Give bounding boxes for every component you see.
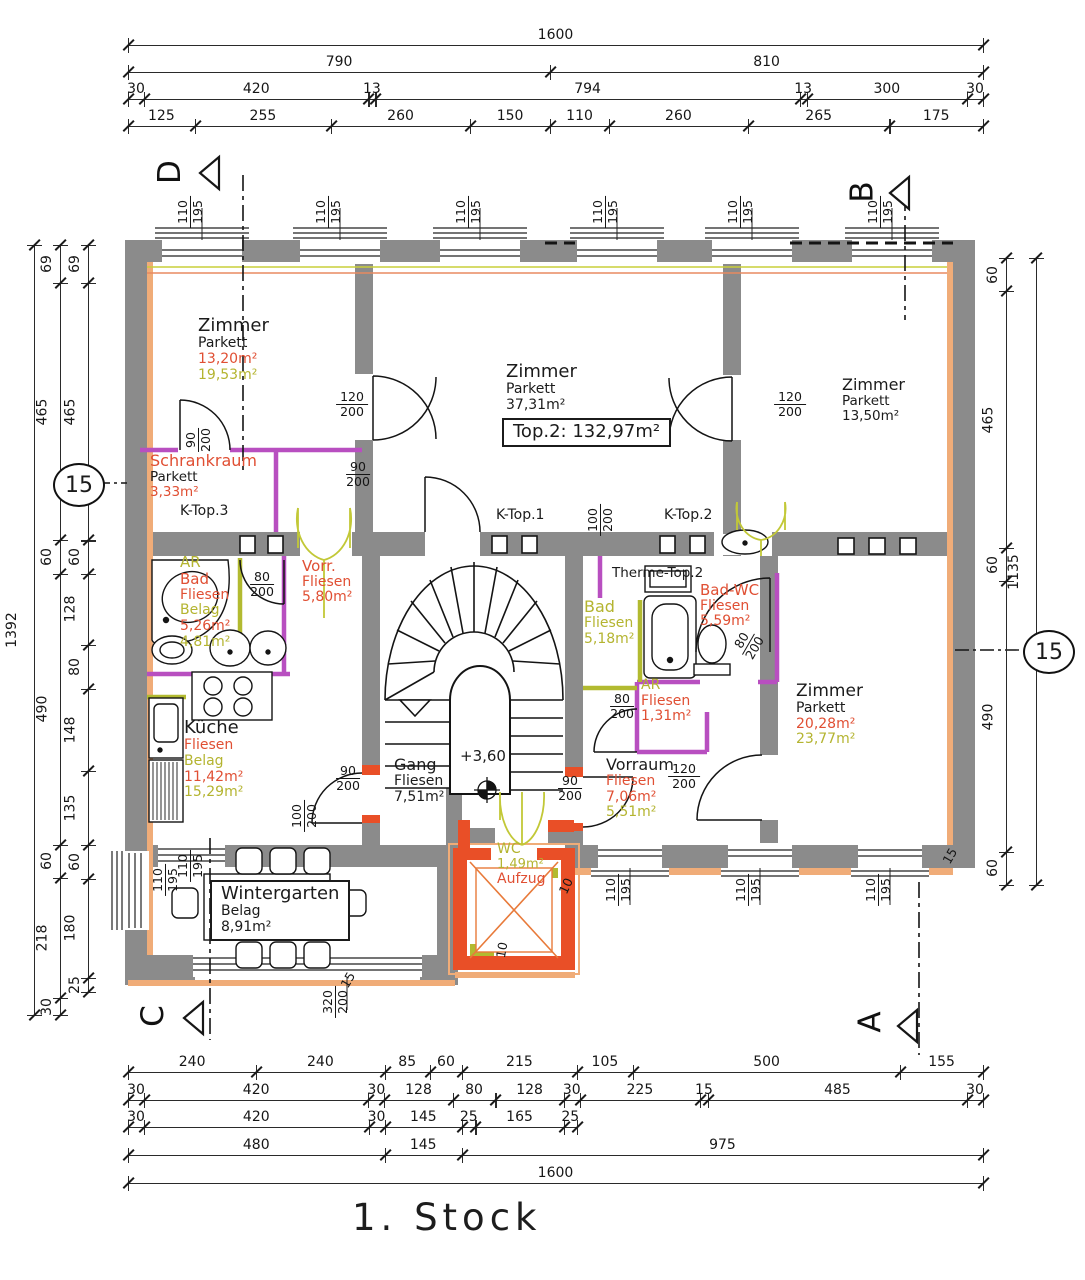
dim-width: 110 xyxy=(604,874,619,906)
dim-width: 100 xyxy=(290,800,305,832)
dim-value: 80 xyxy=(67,658,83,676)
dim-height: 200 xyxy=(668,777,700,791)
dim-value: 465 xyxy=(35,398,51,425)
dim-value: 300 xyxy=(873,81,900,97)
room-label-zimmer-tl: ZimmerParkett13,20m²19,53m² xyxy=(198,316,269,383)
room-label-line: 1,49m² xyxy=(497,858,546,873)
dim-value: 1600 xyxy=(538,27,574,43)
section-marker-arrow-B xyxy=(886,173,912,217)
dim-value: 1135 xyxy=(1006,554,1022,590)
dim-110-195-3: 110195 xyxy=(591,196,619,228)
dim-height: 195 xyxy=(619,874,633,906)
dim-chain-bottom-5 xyxy=(128,1183,983,1184)
dim-value: 60 xyxy=(39,548,55,566)
room-label-kueche: KücheFliesenBelag11,42m²15,29m² xyxy=(184,718,243,801)
room-label-zimmer-tr: ZimmerParkett13,50m² xyxy=(842,376,905,424)
room-label-line: Parkett xyxy=(796,701,863,717)
dim-110-195-4: 110195 xyxy=(726,196,754,228)
room-label-line: Zimmer xyxy=(842,376,905,394)
dim-value: 485 xyxy=(824,1082,851,1098)
dim-120-200-15: 120200 xyxy=(774,390,806,418)
room-label-line: Fliesen xyxy=(180,588,230,604)
room-label-vorr: Vorr.Fliesen5,80m² xyxy=(302,558,352,606)
dim-320-200-11: 320200 xyxy=(321,986,349,1018)
section-marker-A: A xyxy=(853,1011,889,1032)
dim-height: 200 xyxy=(336,405,368,419)
dim-value: 1600 xyxy=(538,1165,574,1181)
room-label-line: Fliesen xyxy=(641,694,691,710)
room-label-k-top-1: K-Top.1 xyxy=(496,508,544,524)
room-label-line: Fliesen xyxy=(184,738,243,754)
room-label-line: Belag xyxy=(180,603,230,619)
dim-100-200-23: 100200 xyxy=(290,800,318,832)
room-label-line: Therme-Top.2 xyxy=(612,566,703,581)
room-label-k-top-2: K-Top.2 xyxy=(664,508,712,524)
dim-chain-bottom-2 xyxy=(128,1100,983,1101)
room-label-line: Zimmer xyxy=(198,316,269,336)
dim-value: 105 xyxy=(592,1054,619,1070)
floor-plan-sheet: ZimmerParkett13,20m²19,53m²SchrankraumPa… xyxy=(0,0,1085,1280)
section-marker-arrow-D xyxy=(196,153,222,197)
dim-width: 120 xyxy=(774,390,806,405)
room-label-line: 13,20m² xyxy=(198,352,269,368)
dim-100-200-16: 100200 xyxy=(586,504,614,536)
dim-110-195-10: 110195 xyxy=(864,874,892,906)
room-label-line: 11,42m² xyxy=(184,770,243,786)
dim-value: 30 xyxy=(127,1082,145,1098)
dim-value: 30 xyxy=(39,998,55,1016)
dim-width: 320 xyxy=(321,986,336,1018)
room-label-line: K-Top.3 xyxy=(180,504,228,520)
section-marker-arrow-C xyxy=(180,998,206,1042)
dim-chain-bottom-3 xyxy=(128,1127,577,1128)
room-label-line: 20,28m² xyxy=(796,717,863,733)
room-label-bad-wc: Bad-WCFliesen5,59m² xyxy=(700,582,759,630)
room-label-ar-klein: ARFliesen1,31m² xyxy=(641,678,691,725)
dim-width: 80 xyxy=(250,570,274,585)
drawing-title: 1. Stock xyxy=(352,1196,541,1239)
room-label-line: Zimmer xyxy=(506,362,577,382)
dim-value: 13 xyxy=(363,81,381,97)
dim-height: 200 xyxy=(601,504,615,536)
dim-value: 148 xyxy=(63,716,79,743)
dim-chain-bottom-4 xyxy=(128,1155,983,1156)
dim-value: 145 xyxy=(410,1109,437,1125)
dim-value: 180 xyxy=(63,915,79,942)
dim-110-195-0: 110195 xyxy=(176,196,204,228)
dim-height: 195 xyxy=(741,196,755,228)
dim-value: 30 xyxy=(367,1082,385,1098)
dim-value: 260 xyxy=(665,108,692,124)
dim-width: 90 xyxy=(346,460,370,475)
dim-height: 200 xyxy=(346,475,370,489)
dim-height: 200 xyxy=(305,800,319,832)
dim-120-200-12: 120200 xyxy=(336,390,368,418)
dim-value: 30 xyxy=(127,81,145,97)
annotation-overlay: ZimmerParkett13,20m²19,53m²SchrankraumPa… xyxy=(0,0,1085,1280)
dim-value: 420 xyxy=(243,1082,270,1098)
room-label-zimmer-br: ZimmerParkett20,28m²23,77m² xyxy=(796,682,863,748)
dim-value: 145 xyxy=(410,1137,437,1153)
dim-value: 1392 xyxy=(4,612,20,648)
room-label-vorraum: VorraumFliesen7,06m²5,51m² xyxy=(606,756,674,821)
dim-height: 195 xyxy=(879,874,893,906)
dim-value: 125 xyxy=(148,108,175,124)
room-label-line: Fliesen xyxy=(302,575,352,591)
dim-value: 215 xyxy=(506,1054,533,1070)
dim-value: 150 xyxy=(497,108,524,124)
dim-value: 13 xyxy=(794,81,812,97)
section-marker-C: C xyxy=(135,1005,171,1027)
dim-value: 490 xyxy=(35,696,51,723)
dim-chain-top-3 xyxy=(128,99,983,100)
dim-chain-top-2 xyxy=(128,72,983,73)
dim-value: 30 xyxy=(127,1109,145,1125)
dim-value: 15 xyxy=(695,1082,713,1098)
dim-90-200-14: 90200 xyxy=(184,428,212,452)
dim-value: 60 xyxy=(39,852,55,870)
room-label-level: +3,60 xyxy=(460,748,506,765)
room-label-wc-aufzug: WC1,49m²Aufzug xyxy=(497,842,546,888)
axis-circle-15: 15 xyxy=(53,463,105,507)
dim-value: 465 xyxy=(63,398,79,425)
room-label-line: Vorraum xyxy=(606,756,674,774)
dim-chain-left-1 xyxy=(34,245,35,1015)
room-label-line: 37,31m² xyxy=(506,398,577,414)
dim-value: 480 xyxy=(243,1137,270,1153)
room-label-line: Belag xyxy=(184,754,243,770)
room-label-line: 4,81m² xyxy=(180,635,230,651)
dim-value: 500 xyxy=(753,1054,780,1070)
room-label-line: Gang xyxy=(394,756,444,774)
dim-110-195-7: 110195 xyxy=(176,850,204,882)
dim-10-25: 10 xyxy=(494,941,510,959)
dim-width: 100 xyxy=(586,504,601,536)
dim-value: 60 xyxy=(985,266,1001,284)
room-label-schrankraum: SchrankraumParkett3,33m² xyxy=(150,452,257,500)
dim-chain-left-2 xyxy=(60,245,61,1015)
dim-value: 25 xyxy=(460,1109,478,1125)
dim-height: 200 xyxy=(250,585,274,599)
room-label-k-top-3: K-Top.3 xyxy=(180,504,228,520)
dim-10-24: 10 xyxy=(557,876,576,896)
dim-value: 790 xyxy=(326,54,353,70)
room-label-line: Parkett xyxy=(842,394,905,409)
room-label-line: Bad-WC xyxy=(700,582,759,599)
dim-90-200-22: 90200 xyxy=(336,764,360,792)
room-label-line: 7,51m² xyxy=(394,790,444,806)
room-label-wintergarten: WintergartenBelag8,91m² xyxy=(210,880,350,941)
room-label-line: Zimmer xyxy=(796,682,863,701)
room-label-ar-bad: ARBadFliesenBelag5,26m²4,81m² xyxy=(180,554,230,650)
dim-chain-top-1 xyxy=(128,45,983,46)
room-label-line: Belag xyxy=(221,904,339,920)
dim-value: 128 xyxy=(63,596,79,623)
room-label-line: Parkett xyxy=(150,470,257,485)
room-label-bad-mitte: BadFliesen5,18m² xyxy=(584,598,634,647)
room-label-line: Fliesen xyxy=(700,599,759,615)
room-label-zimmer-mitte: ZimmerParkett37,31m² xyxy=(506,362,577,414)
dim-height: 195 xyxy=(749,874,763,906)
dim-80-200-19: 80200 xyxy=(730,627,766,662)
section-marker-arrow-A xyxy=(894,1006,920,1050)
dim-value: 794 xyxy=(574,81,601,97)
room-label-line: Bad xyxy=(180,571,230,588)
dim-value: 30 xyxy=(966,1082,984,1098)
dim-value: 25 xyxy=(67,976,83,994)
dim-value: 490 xyxy=(981,703,997,730)
room-label-line: WC xyxy=(497,842,546,858)
dim-110-195-1: 110195 xyxy=(314,196,342,228)
room-label-line: AR xyxy=(641,678,691,694)
dim-value: 135 xyxy=(63,795,79,822)
dim-80-200-17: 80200 xyxy=(250,570,274,598)
dim-value: 60 xyxy=(67,548,83,566)
room-label-line: Top.2: 132,97m² xyxy=(513,422,660,442)
dim-height: 195 xyxy=(329,196,343,228)
room-label-line: Fliesen xyxy=(606,774,674,790)
dim-value: 110 xyxy=(566,108,593,124)
dim-chain-top-4 xyxy=(128,126,983,127)
dim-height: 200 xyxy=(774,405,806,419)
dim-value: 30 xyxy=(966,81,984,97)
dim-value: 60 xyxy=(67,853,83,871)
dim-value: 218 xyxy=(35,925,51,952)
room-label-line: 5,51m² xyxy=(606,805,674,821)
dim-height: 195 xyxy=(469,196,483,228)
dim-value: 80 xyxy=(465,1082,483,1098)
dim-value: 60 xyxy=(985,860,1001,878)
dim-value: 420 xyxy=(243,1109,270,1125)
dim-height: 200 xyxy=(336,779,360,793)
room-label-line: Wintergarten xyxy=(221,884,339,904)
dim-value: 465 xyxy=(981,406,997,433)
room-label-line: 5,80m² xyxy=(302,590,352,606)
room-label-gang: GangFliesen7,51m² xyxy=(394,756,444,805)
room-label-line: Schrankraum xyxy=(150,452,257,470)
room-label-line: 5,26m² xyxy=(180,619,230,635)
dim-value: 240 xyxy=(307,1054,334,1070)
dim-15-26: 15 xyxy=(940,846,960,867)
dim-width: 110 xyxy=(864,874,879,906)
dim-value: 420 xyxy=(243,81,270,97)
dim-value: 69 xyxy=(39,255,55,273)
dim-value: 810 xyxy=(753,54,780,70)
dim-width: 110 xyxy=(176,850,191,882)
room-label-line: K-Top.2 xyxy=(664,508,712,524)
dim-90-200-13: 90200 xyxy=(346,460,370,488)
dim-width: 110 xyxy=(176,196,191,228)
dim-value: 975 xyxy=(709,1137,736,1153)
room-label-line: 23,77m² xyxy=(796,732,863,748)
room-label-line: Bad xyxy=(584,598,634,616)
dim-width: 110 xyxy=(454,196,469,228)
room-label-line: AR xyxy=(180,554,230,571)
room-label-line: Vorr. xyxy=(302,558,352,575)
room-label-line: 1,31m² xyxy=(641,709,691,725)
dim-80-200-18: 80200 xyxy=(610,692,634,720)
dim-height: 195 xyxy=(191,196,205,228)
dim-90-200-20: 90200 xyxy=(558,774,582,802)
dim-height: 200 xyxy=(199,428,213,452)
dim-value: 128 xyxy=(516,1082,543,1098)
dim-width: 80 xyxy=(610,692,634,707)
dim-value: 260 xyxy=(387,108,414,124)
room-label-line: 15,29m² xyxy=(184,785,243,801)
room-label-line: Fliesen xyxy=(584,616,634,632)
dim-value: 175 xyxy=(923,108,950,124)
dim-120-200-21: 120200 xyxy=(668,762,700,790)
room-label-line: 7,06m² xyxy=(606,790,674,806)
room-label-line: Aufzug xyxy=(497,872,546,888)
dim-width: 110 xyxy=(726,196,741,228)
room-label-line: 19,53m² xyxy=(198,368,269,384)
dim-width: 110 xyxy=(734,874,749,906)
dim-110-195-8: 110195 xyxy=(604,874,632,906)
dim-width: 110 xyxy=(591,196,606,228)
dim-width: 120 xyxy=(336,390,368,405)
room-label-line: 3,33m² xyxy=(150,485,257,500)
dim-width: 90 xyxy=(558,774,582,789)
room-label-top2-total: Top.2: 132,97m² xyxy=(502,418,671,447)
dim-value: 255 xyxy=(250,108,277,124)
dim-height: 195 xyxy=(191,850,205,882)
dim-value: 60 xyxy=(985,556,1001,574)
dim-value: 60 xyxy=(437,1054,455,1070)
dim-height: 200 xyxy=(610,707,634,721)
room-label-line: 8,91m² xyxy=(221,920,339,936)
dim-width: 110 xyxy=(314,196,329,228)
dim-value: 25 xyxy=(561,1109,579,1125)
dim-width: 90 xyxy=(336,764,360,779)
axis-circle-15: 15 xyxy=(1023,630,1075,674)
dim-value: 69 xyxy=(67,255,83,273)
dim-width: 110 xyxy=(151,864,166,896)
dim-width: 120 xyxy=(668,762,700,777)
dim-value: 85 xyxy=(398,1054,416,1070)
room-label-line: Küche xyxy=(184,718,243,738)
dim-110-195-2: 110195 xyxy=(454,196,482,228)
room-label-therme: Therme-Top.2 xyxy=(612,566,703,581)
dim-height: 195 xyxy=(606,196,620,228)
dim-chain-right-2 xyxy=(1036,258,1037,885)
section-marker-D: D xyxy=(152,160,188,184)
room-label-line: +3,60 xyxy=(460,748,506,765)
dim-value: 165 xyxy=(506,1109,533,1125)
dim-110-195-9: 110195 xyxy=(734,874,762,906)
dim-value: 30 xyxy=(563,1082,581,1098)
dim-width: 90 xyxy=(184,428,199,452)
dim-value: 225 xyxy=(627,1082,654,1098)
room-label-line: Fliesen xyxy=(394,774,444,790)
dim-height: 200 xyxy=(558,789,582,803)
section-marker-B: B xyxy=(845,181,881,202)
dim-value: 240 xyxy=(179,1054,206,1070)
dim-value: 155 xyxy=(928,1054,955,1070)
room-label-line: Parkett xyxy=(198,336,269,352)
room-label-line: Parkett xyxy=(506,382,577,398)
room-label-line: K-Top.1 xyxy=(496,508,544,524)
dim-value: 30 xyxy=(368,1109,386,1125)
room-label-line: 13,50m² xyxy=(842,409,905,424)
dim-height: 200 xyxy=(336,986,350,1018)
dim-value: 128 xyxy=(405,1082,432,1098)
room-label-line: 5,59m² xyxy=(700,614,759,630)
dim-value: 265 xyxy=(805,108,832,124)
room-label-line: 5,18m² xyxy=(584,632,634,648)
